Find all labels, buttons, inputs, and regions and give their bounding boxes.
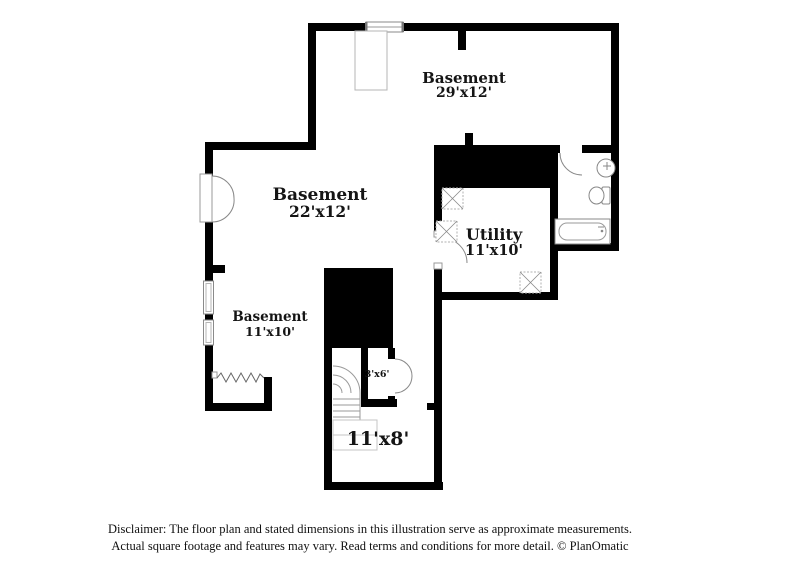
wall-left-stub [213, 265, 225, 273]
window-well-outline [355, 31, 387, 90]
wall-bottom-11x8 [324, 482, 443, 490]
window-left-upper [204, 281, 214, 314]
utility-solid-block [434, 145, 550, 188]
disclaimer-line-2: Actual square footage and features may v… [0, 538, 740, 555]
wall-upper-left-vertical [308, 23, 316, 150]
room-dims: 11'x10' [465, 243, 523, 259]
room-dims: 22'x12' [273, 204, 368, 221]
wall-bathroom-top-left [548, 145, 560, 153]
room-dims: 11'x8' [347, 429, 410, 450]
wall-top-right-seg [403, 23, 619, 31]
wall-doorstop-tick [427, 403, 434, 410]
room-label-basement-29x12: Basement 29'x12' [422, 70, 506, 101]
disclaimer: Disclaimer: The floor plan and stated di… [0, 521, 740, 555]
room-label-basement-11x10: Basement 11'x10' [232, 310, 307, 338]
vent-marker-icon [520, 272, 541, 293]
room-dims: 3'x6' [365, 370, 390, 380]
toilet-icon [589, 187, 610, 204]
wall-left-b [205, 222, 213, 281]
wall-left-11x8 [324, 348, 332, 490]
wall-left-a [205, 142, 213, 176]
wall-bathroom-top-right [582, 145, 619, 153]
floor-plan-drawing [0, 0, 800, 582]
window-left-lower [204, 320, 214, 345]
bathtub-icon [555, 219, 610, 244]
room-dims: 29'x12' [422, 86, 506, 101]
break-line [212, 372, 264, 382]
wall-bottom-left-horizontal [205, 403, 272, 411]
wall-right-exterior [611, 23, 619, 251]
sink-icon [597, 159, 615, 177]
wall-closet-jamb-top [388, 348, 395, 359]
french-door [200, 174, 234, 222]
wall-stub-top [458, 31, 466, 50]
room-label-basement-22x12: Basement 22'x12' [273, 186, 368, 221]
room-label-11x8: 11'x8' [347, 429, 410, 450]
room-label-closet-3x6: 3'x6' [365, 370, 390, 380]
wall-bottom-left-vertical [264, 377, 272, 411]
floor-plan-canvas: Basement 29'x12' Basement 22'x12' Baseme… [0, 0, 800, 582]
wall-closet-jamb-bottom [388, 396, 395, 407]
walls [205, 23, 619, 490]
room-label-utility: Utility 11'x10' [465, 226, 523, 259]
room-name: Basement [232, 310, 307, 325]
room-name: Utility [465, 226, 523, 243]
bathroom-fixtures [555, 159, 615, 244]
vent-marker-icon [442, 188, 463, 209]
disclaimer-line-1: Disclaimer: The floor plan and stated di… [0, 521, 740, 538]
wall-top-left-seg [308, 23, 367, 31]
bathroom-door [560, 153, 582, 175]
room-name: Basement [422, 70, 506, 86]
room-dims: 11'x10' [232, 325, 307, 339]
vent-marker-icon [436, 221, 457, 242]
stairwell-solid-block [324, 268, 393, 348]
closet-double-door [395, 359, 412, 393]
wall-upper-horizontal [205, 142, 316, 150]
